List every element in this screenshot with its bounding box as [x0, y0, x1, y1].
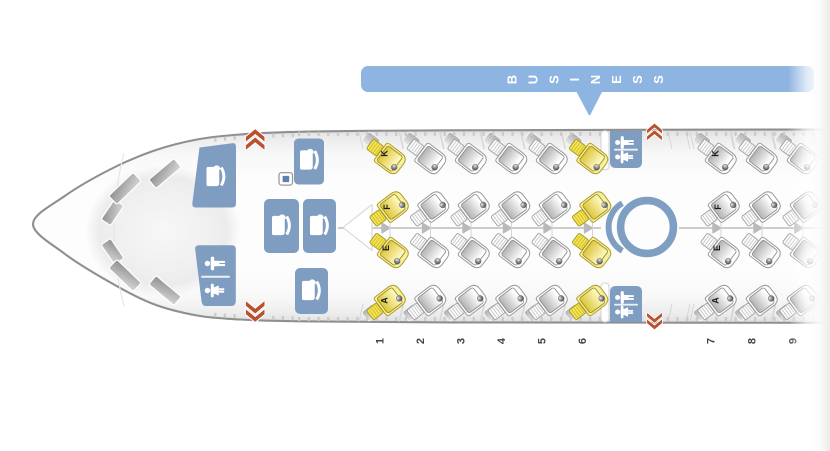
svg-text:I: I	[567, 78, 582, 82]
svg-text:5: 5	[537, 338, 549, 344]
svg-text:S: S	[651, 75, 666, 84]
svg-text:S: S	[546, 75, 561, 84]
svg-text:E: E	[609, 75, 624, 84]
svg-text:1: 1	[375, 338, 387, 344]
svg-text:N: N	[588, 75, 603, 84]
svg-text:4: 4	[496, 337, 508, 344]
svg-text:F: F	[382, 204, 392, 210]
svg-text:8: 8	[747, 338, 759, 344]
svg-text:B: B	[505, 75, 520, 84]
svg-text:K: K	[380, 150, 390, 157]
svg-text:E: E	[381, 245, 391, 251]
svg-text:U: U	[525, 75, 540, 84]
svg-text:K: K	[711, 150, 721, 157]
svg-text:E: E	[712, 245, 722, 251]
svg-text:2: 2	[415, 338, 427, 344]
svg-text:6: 6	[577, 338, 589, 344]
svg-text:A: A	[711, 297, 721, 304]
svg-text:7: 7	[706, 338, 718, 344]
svg-text:S: S	[630, 75, 645, 84]
svg-text:A: A	[380, 297, 390, 304]
svg-text:3: 3	[456, 338, 468, 344]
svg-text:F: F	[713, 204, 723, 210]
